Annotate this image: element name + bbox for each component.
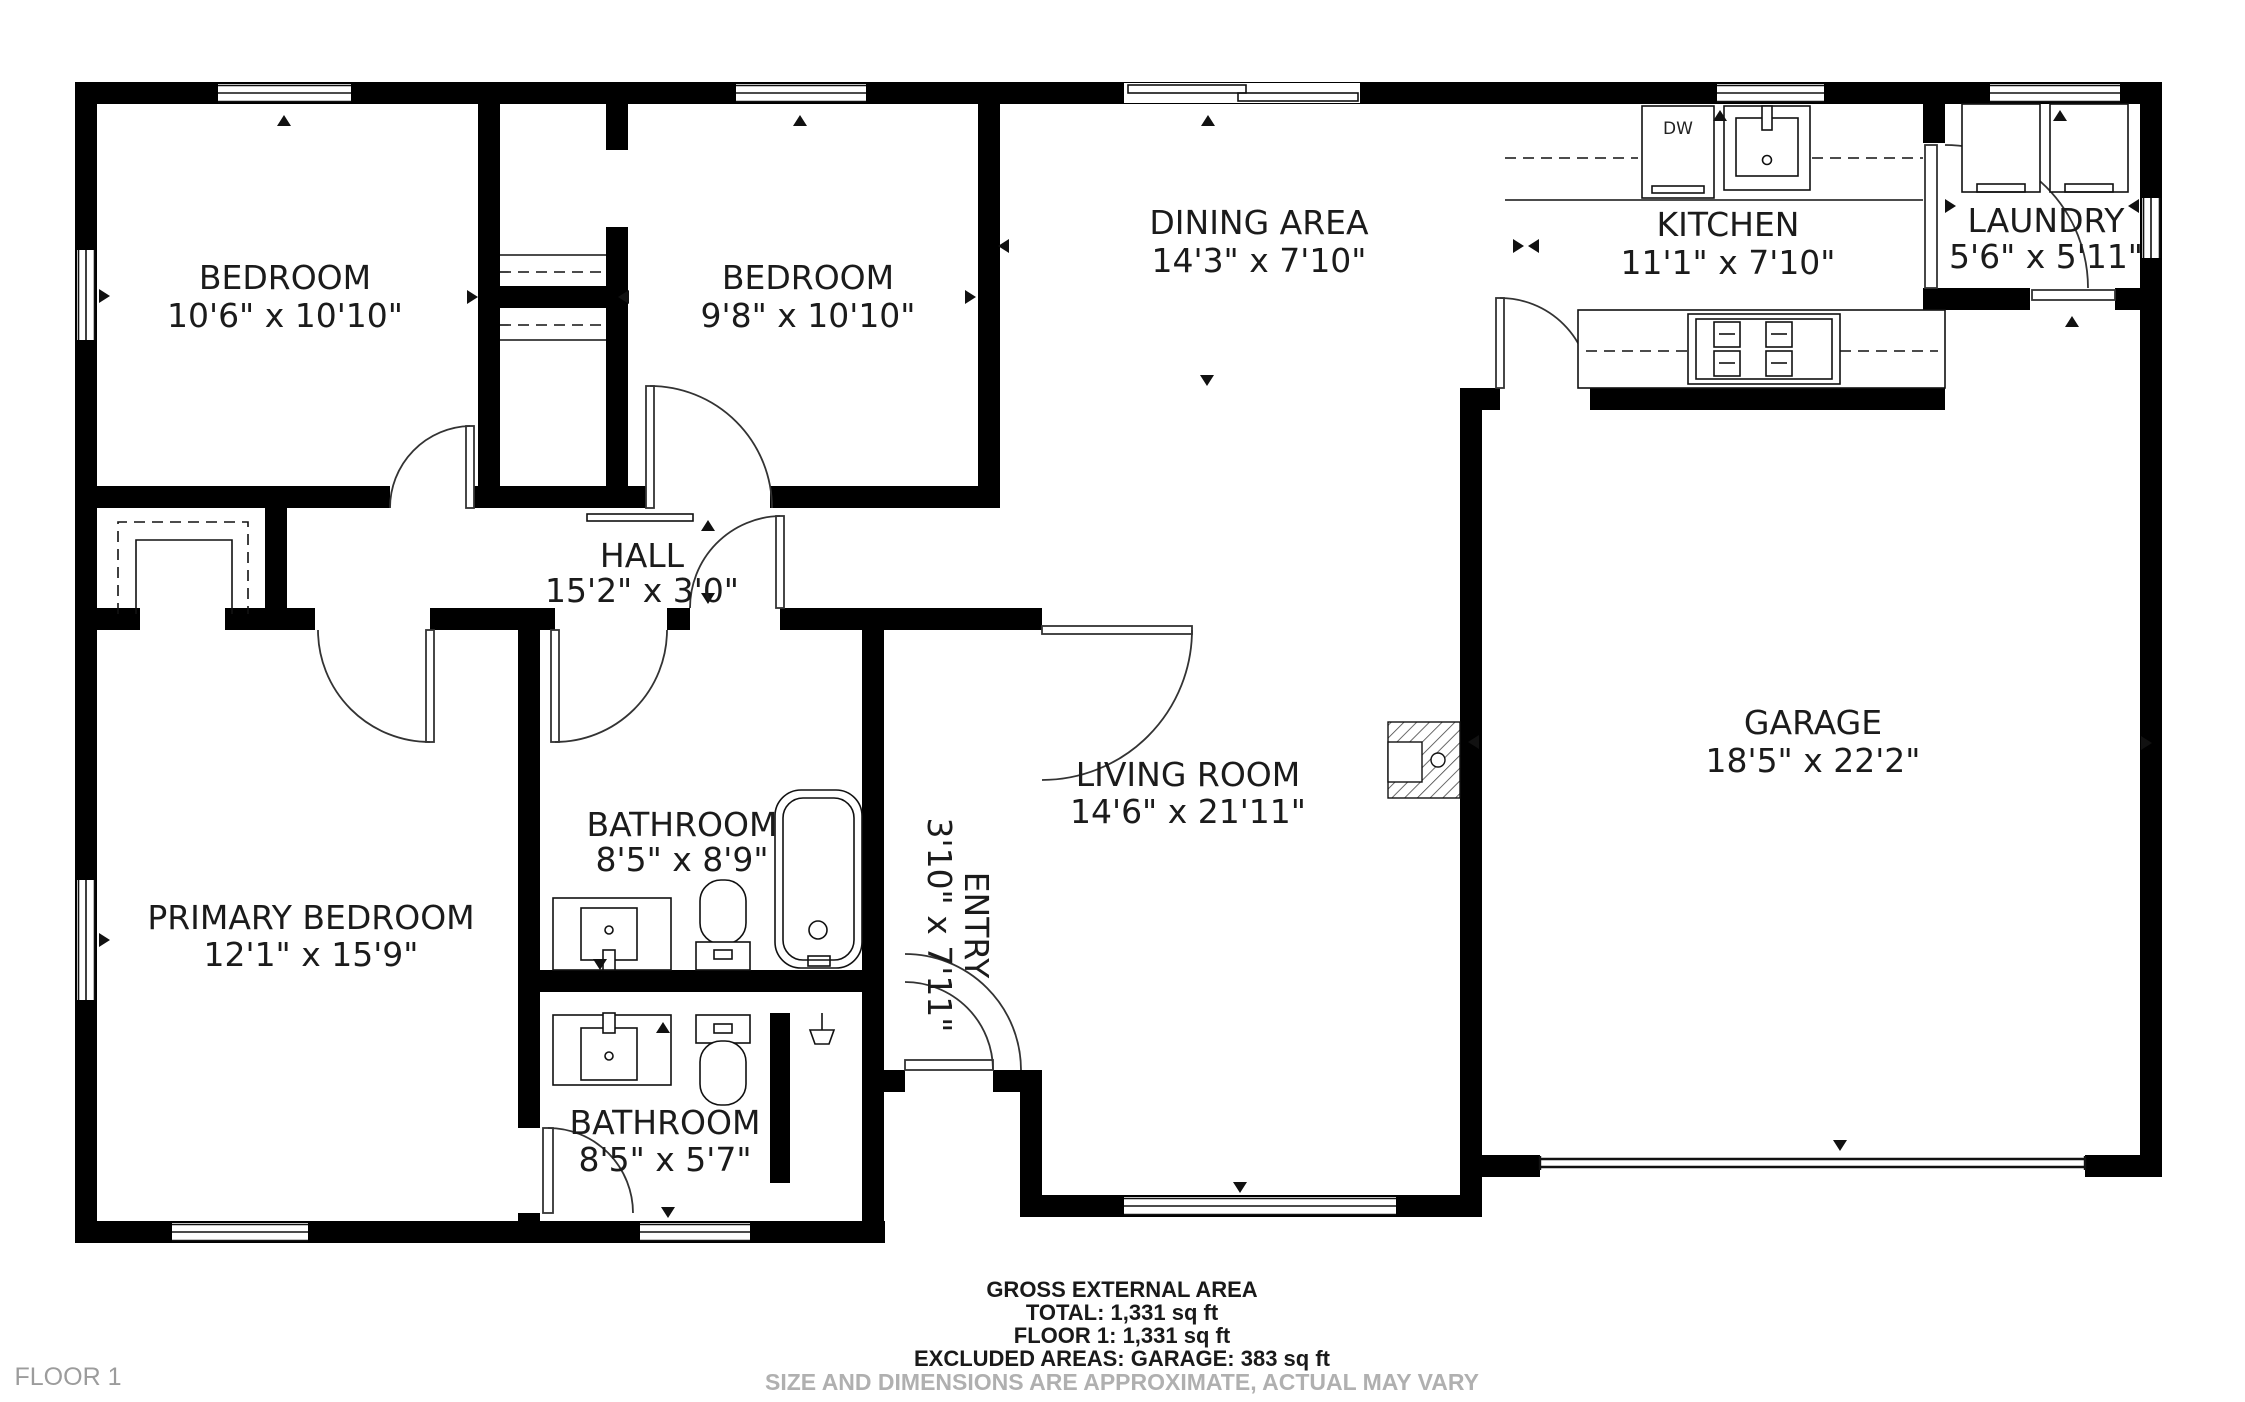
footer-title: GROSS EXTERNAL AREA xyxy=(986,1277,1257,1302)
room-label-garage: GARAGE xyxy=(1744,703,1882,742)
door-garage-service xyxy=(2032,290,2115,300)
floorplan-canvas: BEDROOM 10'6" x 10'10" BEDROOM 9'8" x 10… xyxy=(0,0,2245,1402)
laundry-fixtures xyxy=(1962,104,2128,192)
door-bathroom1 xyxy=(551,630,667,742)
window-laundry-right xyxy=(2142,198,2160,258)
door-bedroom1 xyxy=(390,426,474,508)
footer-disclaimer: SIZE AND DIMENSIONS ARE APPROXIMATE, ACT… xyxy=(765,1369,1479,1395)
room-label-bathroom-1: BATHROOM xyxy=(587,805,778,844)
room-dims-dining-area: 14'3" x 7'10" xyxy=(1152,241,1367,280)
room-labels: BEDROOM 10'6" x 10'10" BEDROOM 9'8" x 10… xyxy=(147,119,2143,1179)
footer-excluded: EXCLUDED AREAS: GARAGE: 383 sq ft xyxy=(914,1346,1331,1371)
room-dims-bathroom-1: 8'5" x 8'9" xyxy=(596,840,769,879)
window-kitchen-top xyxy=(1717,84,1824,102)
room-label-primary-bedroom: PRIMARY BEDROOM xyxy=(147,898,474,937)
walls xyxy=(75,82,2162,1243)
shower-head-icon xyxy=(810,1013,834,1044)
footer-floor: FLOOR 1: 1,331 sq ft xyxy=(1014,1323,1231,1348)
linen-closet xyxy=(118,522,248,614)
kitchen-sink xyxy=(1724,106,1810,190)
toilet-1 xyxy=(696,880,750,970)
footer-total: TOTAL: 1,331 sq ft xyxy=(1026,1300,1219,1325)
room-label-hall: HALL xyxy=(600,536,685,575)
window-primary-left xyxy=(77,880,95,1000)
hall-closet-track xyxy=(587,514,693,521)
sliding-door-dining xyxy=(1124,83,1360,103)
room-label-entry: ENTRY xyxy=(957,872,996,980)
washer xyxy=(1962,104,2040,192)
door-window-markers xyxy=(99,110,2152,1218)
window-bedroom1-left xyxy=(77,250,95,340)
bathroom2-fixtures xyxy=(553,1013,834,1105)
room-dims-garage: 18'5" x 22'2" xyxy=(1706,741,1921,780)
floorplan-page: BEDROOM 10'6" x 10'10" BEDROOM 9'8" x 10… xyxy=(0,0,2245,1402)
toilet-2 xyxy=(696,1015,750,1105)
window-primary-bottom xyxy=(172,1223,308,1241)
vanity-sink-2 xyxy=(553,1013,671,1085)
vanity-sink-1 xyxy=(553,898,671,970)
room-label-laundry: LAUNDRY xyxy=(1968,201,2126,240)
room-dims-living-room: 14'6" x 21'11" xyxy=(1070,792,1306,831)
fireplace xyxy=(1388,722,1460,798)
dishwasher-label: DW xyxy=(1663,119,1693,139)
footer: GROSS EXTERNAL AREA TOTAL: 1,331 sq ft F… xyxy=(765,1277,1479,1395)
door-bedroom2 xyxy=(646,386,772,508)
room-label-bedroom-1: BEDROOM xyxy=(199,258,371,297)
bathtub xyxy=(775,790,862,968)
room-dims-bedroom-1: 10'6" x 10'10" xyxy=(167,296,403,335)
window-bedroom1-top xyxy=(218,84,351,102)
window-living-bottom xyxy=(1124,1197,1396,1215)
floor-label: FLOOR 1 xyxy=(15,1363,122,1391)
window-laundry-top xyxy=(1990,84,2120,102)
window-bathroom2-bottom xyxy=(640,1223,750,1241)
window-bedroom2-top xyxy=(736,84,866,102)
room-dims-laundry: 5'6" x 5'11" xyxy=(1949,237,2143,276)
room-label-living-room: LIVING ROOM xyxy=(1076,755,1301,794)
room-dims-bathroom-2: 8'5" x 5'7" xyxy=(579,1140,752,1179)
stove-counter xyxy=(1578,310,1945,388)
room-label-kitchen: KITCHEN xyxy=(1657,205,1800,244)
room-dims-hall: 15'2" x 3'0" xyxy=(545,571,739,610)
room-label-bathroom-2: BATHROOM xyxy=(570,1103,761,1142)
room-dims-entry: 3'10" x 7'11" xyxy=(920,818,959,1033)
room-dims-kitchen: 11'1" x 7'10" xyxy=(1621,243,1836,282)
room-label-bedroom-2: BEDROOM xyxy=(722,258,894,297)
windows xyxy=(77,83,2160,1241)
garage-door xyxy=(1540,1156,2085,1170)
room-label-dining-area: DINING AREA xyxy=(1149,203,1369,242)
room-dims-primary-bedroom: 12'1" x 15'9" xyxy=(204,935,419,974)
room-dims-bedroom-2: 9'8" x 10'10" xyxy=(701,296,916,335)
door-kitchen xyxy=(1496,298,1590,388)
door-primary-bedroom xyxy=(318,630,434,742)
